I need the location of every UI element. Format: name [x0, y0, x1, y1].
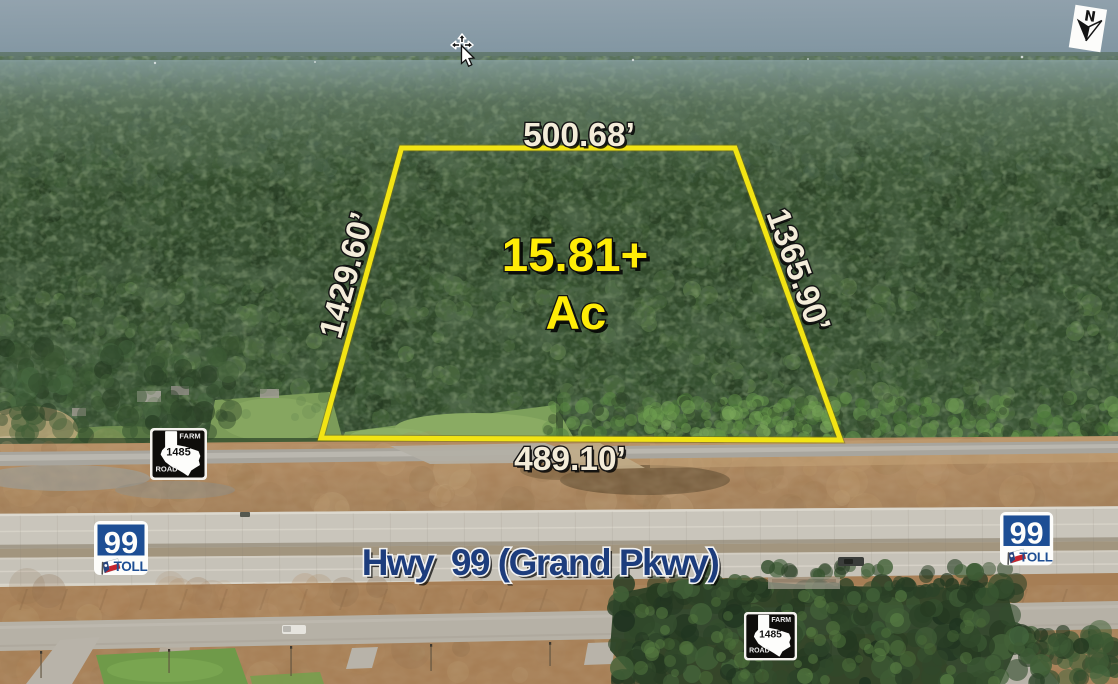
svg-text:99: 99	[104, 525, 138, 560]
svg-text:ROAD: ROAD	[155, 465, 178, 474]
svg-text:FARM: FARM	[179, 432, 200, 441]
svg-text:ROAD: ROAD	[749, 647, 770, 654]
svg-text:15.81+: 15.81+	[502, 229, 649, 282]
svg-text:TOLL: TOLL	[114, 559, 148, 574]
svg-text:1485: 1485	[759, 630, 782, 641]
svg-text:Ac: Ac	[546, 287, 607, 340]
svg-text:1485: 1485	[166, 447, 190, 459]
svg-text:TOLL: TOLL	[1019, 549, 1052, 564]
svg-text:Hwy 99 (Grand Pkwy): Hwy 99 (Grand Pkwy)	[362, 542, 719, 583]
svg-text:489.10’: 489.10’	[514, 441, 626, 478]
svg-text:FARM: FARM	[771, 617, 791, 624]
svg-text:99: 99	[1010, 517, 1044, 551]
svg-text:500.68’: 500.68’	[523, 117, 635, 154]
